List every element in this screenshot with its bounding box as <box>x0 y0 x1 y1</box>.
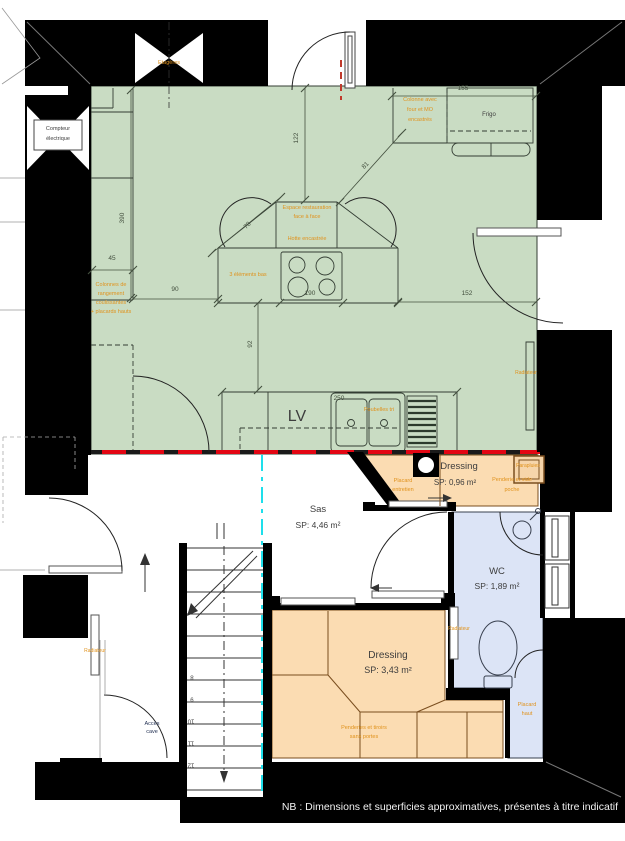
label-penderie-1: Penderie et vide <box>486 477 538 484</box>
stair-step-12: 12 <box>184 760 198 768</box>
room-area-dressing-entry: SP: 0,96 m² <box>424 478 486 488</box>
room-label-sas: Sas <box>288 504 348 516</box>
dim-390: 390 <box>119 209 127 227</box>
label-placard-haut-1: Placard <box>504 702 550 709</box>
dim-152: 152 <box>456 290 478 298</box>
label-penderies-tiroirs-1: Penderies et tiroirs <box>326 725 402 732</box>
stair-step-10: 10 <box>184 716 198 724</box>
label-penderie-2: poche <box>486 487 538 494</box>
label-penderies-tiroirs-2: sans portes <box>326 734 402 741</box>
label-compteur-2: électrique <box>36 136 80 143</box>
room-area-sas: SP: 4,46 m² <box>284 520 352 531</box>
room-area-dressing-main: SP: 3,43 m² <box>350 665 426 676</box>
room-area-wc: SP: 1,89 m² <box>462 581 532 592</box>
label-elements-bas: 3 éléments bas <box>220 272 276 279</box>
dim-190: 190 <box>300 290 320 298</box>
room-label-dressing-entry: Dressing <box>428 461 490 473</box>
label-placard-entretien-2: entretien <box>380 487 426 494</box>
dim-155: 155 <box>452 85 474 93</box>
stair-step-8: 8 <box>185 672 199 680</box>
dim-250: 250 <box>330 395 348 403</box>
disclaimer-note: NB : Dimensions et superficies approxima… <box>182 801 618 814</box>
dim-90: 90 <box>167 286 183 294</box>
label-placard-entretien-1: Placard <box>380 478 426 485</box>
label-radiateur-wc: Radiateur <box>436 626 482 632</box>
label-colonne-1: Colonne avec <box>392 97 448 104</box>
stair-step-11: 11 <box>184 738 198 746</box>
red-wall-line <box>88 450 568 454</box>
label-colonne-3: encastrés <box>392 117 448 124</box>
floor-plan: Etagères Compteur électrique Colonne ave… <box>0 0 625 841</box>
room-label-wc: WC <box>467 566 527 578</box>
label-placard-haut-2: haut <box>504 711 550 718</box>
room-areas <box>91 86 543 758</box>
label-colonne-2: four et MO <box>392 107 448 114</box>
label-lave-vaisselle: LV <box>279 407 315 427</box>
label-radiateur-stairs: Radiateur <box>72 648 118 654</box>
kitchen-area <box>91 86 537 454</box>
label-espace-2: face à face <box>272 214 342 221</box>
label-acces-cave-1: Accès <box>136 721 168 728</box>
label-hotte: Hotte encastrée <box>272 236 342 243</box>
dim-122: 122 <box>293 128 301 148</box>
label-rangement-1: Colonnes de <box>86 282 136 289</box>
label-rangement-2: rangement <box>86 291 136 298</box>
label-espace-1: Espace restauration <box>272 205 342 212</box>
label-compteur-1: Compteur <box>36 126 80 133</box>
label-parapluies: Parapluies <box>505 463 551 469</box>
label-frigo: Frigo <box>464 112 514 120</box>
label-rangement-3: coulissantes <box>86 300 136 307</box>
label-radiateur-kitchen: Radiateur <box>503 370 549 376</box>
label-acces-cave-2: cave <box>136 729 168 736</box>
stair-step-9: 9 <box>185 694 199 702</box>
room-label-dressing-main: Dressing <box>354 650 422 663</box>
label-etageres: Etagères <box>146 60 192 67</box>
label-rangement-4: + placards hauts <box>86 309 136 316</box>
dim-45: 45 <box>104 255 120 263</box>
label-poubelles: Poubelles tri <box>352 407 406 414</box>
dim-92: 92 <box>247 336 255 352</box>
